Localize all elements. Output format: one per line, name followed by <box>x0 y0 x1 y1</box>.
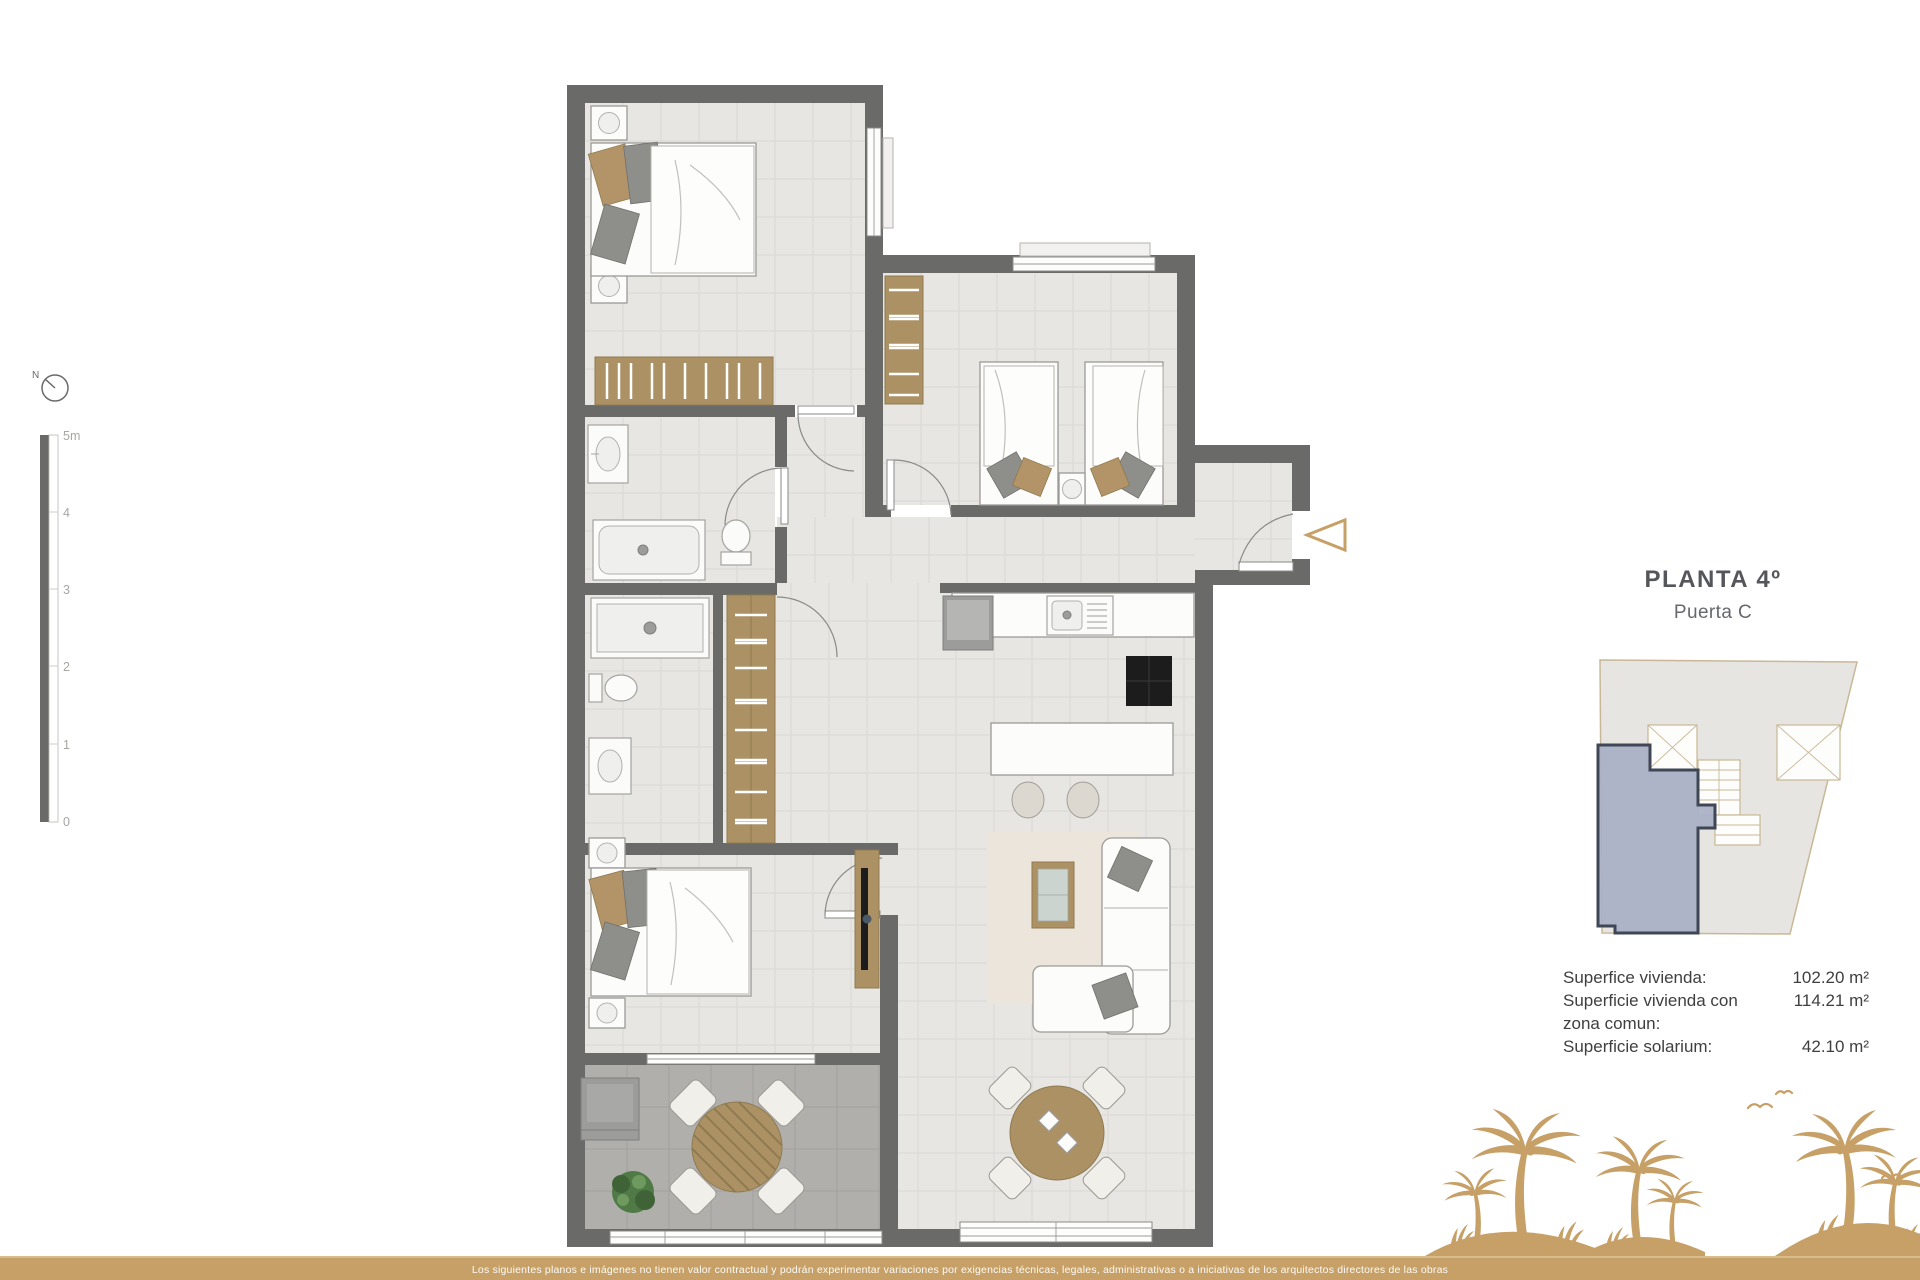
key-plan <box>1595 650 1885 950</box>
master-wardrobe <box>595 357 773 405</box>
area-label: Superficie vivienda con zona comun: <box>1563 989 1774 1035</box>
scale-label-5m: 5m <box>63 429 80 443</box>
entrance-arrow-icon <box>1307 520 1345 550</box>
scale-label-3: 3 <box>63 583 70 597</box>
terrace-balustrade <box>610 1231 882 1244</box>
area-row-solarium: Superficie solarium: 42.10 m² <box>1563 1035 1869 1058</box>
scale-label-1: 1 <box>63 738 70 752</box>
key-plan-lightwell-right <box>1777 725 1840 780</box>
stool <box>1067 782 1099 818</box>
key-plan-highlighted-unit <box>1598 745 1715 933</box>
toilet <box>722 520 750 552</box>
hall-wardrobe <box>727 595 775 843</box>
coffee-table <box>1032 862 1074 928</box>
disclaimer-bar: Los siguientes planos e imágenes no tien… <box>0 1256 1920 1280</box>
page-subtitle: Puerta C <box>1563 602 1863 624</box>
area-value: 102.20 m² <box>1774 966 1869 989</box>
area-value: 42.10 m² <box>1774 1035 1869 1058</box>
kitchen-island <box>991 723 1173 775</box>
area-row-vivienda-zona-comun: Superficie vivienda con zona comun: 114.… <box>1563 989 1869 1035</box>
scale-bar: 5m 4 3 2 1 0 <box>40 429 80 829</box>
area-row-vivienda: Superfice vivienda: 102.20 m² <box>1563 966 1869 989</box>
utility-unit <box>581 1078 639 1140</box>
area-label: Superficie solarium: <box>1563 1035 1774 1058</box>
area-label: Superfice vivienda: <box>1563 966 1774 989</box>
scale-label-0: 0 <box>63 815 70 829</box>
scale-label-4: 4 <box>63 506 70 520</box>
toilet <box>605 675 637 701</box>
twin-wardrobe <box>885 276 923 404</box>
surface-areas: Superfice vivienda: 102.20 m² Superficie… <box>1563 966 1869 1058</box>
scale-and-compass: N 5m 4 3 2 1 0 <box>25 360 115 840</box>
compass-icon: N <box>32 370 68 401</box>
palm-trees-illustration <box>1420 1056 1920 1256</box>
disclaimer-text: Los siguientes planos e imágenes no tien… <box>472 1264 1448 1276</box>
compass-north-label: N <box>32 370 39 381</box>
floor-plan <box>555 70 1355 1260</box>
key-plan-lightwell-left <box>1648 725 1697 770</box>
tv-panel <box>855 850 879 988</box>
page-title: PLANTA 4º <box>1563 566 1863 594</box>
kitchen-sink <box>1047 596 1113 635</box>
area-value: 114.21 m² <box>1774 989 1869 1012</box>
brochure-page: N 5m 4 3 2 1 0 <box>0 0 1920 1280</box>
master-bedroom <box>588 106 773 405</box>
scale-label-2: 2 <box>63 660 70 674</box>
stool <box>1012 782 1044 818</box>
